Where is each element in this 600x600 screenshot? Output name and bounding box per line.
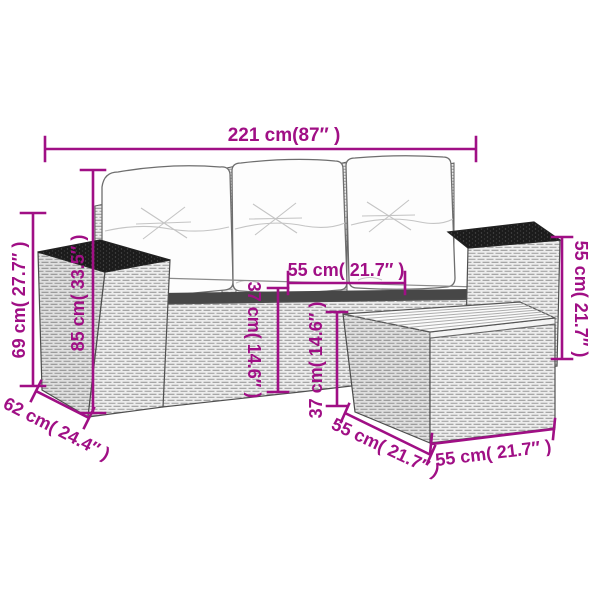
dim-label-armrest-height: 55 cm( 21.7″ ) (571, 241, 591, 358)
dim-label-sofa-height: 69 cm( 27.7″ ) (9, 242, 29, 359)
dim-label-overall-width: 221 cm(87″ ) (228, 125, 341, 146)
dim-label-seat-width: 55 cm( 21.7″ ) (288, 260, 405, 280)
table-front (430, 324, 555, 443)
dim-label-seat-height: 37 cm( 14.6″ ) (244, 282, 264, 399)
left-armrest (38, 240, 170, 417)
sofa-set-illustration: 221 cm(87″ ) 85 cm( 33.5″ ) 69 cm( 27.7″… (0, 0, 600, 600)
dim-label-back-height: 85 cm( 33.5″ ) (68, 235, 88, 352)
product-dimension-diagram: 221 cm(87″ ) 85 cm( 33.5″ ) 69 cm( 27.7″… (0, 0, 600, 600)
dim-label-table-height: 37 cm( 14.6″ ) (306, 302, 326, 419)
